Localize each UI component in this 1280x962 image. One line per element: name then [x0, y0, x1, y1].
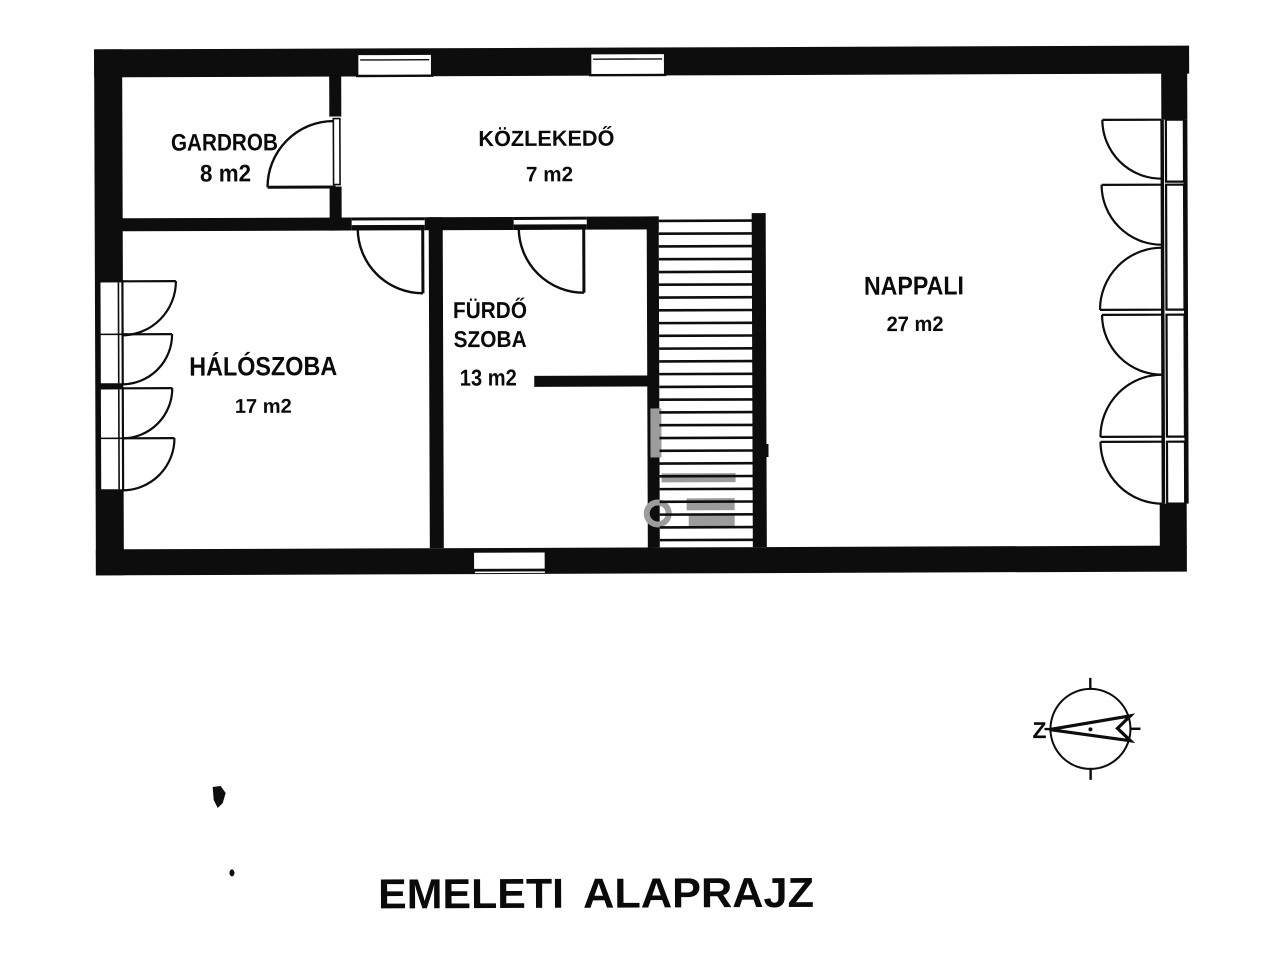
- svg-text:KÖZLEKEDŐ: KÖZLEKEDŐ: [478, 126, 614, 151]
- svg-text:17 m2: 17 m2: [235, 396, 292, 418]
- svg-text:13 m2: 13 m2: [460, 364, 517, 390]
- svg-text:NAPPALI: NAPPALI: [864, 270, 964, 300]
- svg-text:ALAPRAJZ: ALAPRAJZ: [583, 869, 814, 917]
- svg-text:HÁLÓSZOBA: HÁLÓSZOBA: [189, 351, 337, 382]
- svg-text:Z: Z: [1032, 717, 1046, 743]
- svg-text:SZOBA: SZOBA: [454, 326, 527, 352]
- svg-text:EMELETI: EMELETI: [378, 870, 564, 918]
- svg-text:GARDROB: GARDROB: [171, 129, 278, 156]
- svg-text:27 m2: 27 m2: [887, 313, 944, 336]
- svg-text:FÜRDŐ: FÜRDŐ: [453, 296, 527, 323]
- svg-text:7 m2: 7 m2: [526, 163, 573, 186]
- svg-text:8 m2: 8 m2: [200, 160, 251, 187]
